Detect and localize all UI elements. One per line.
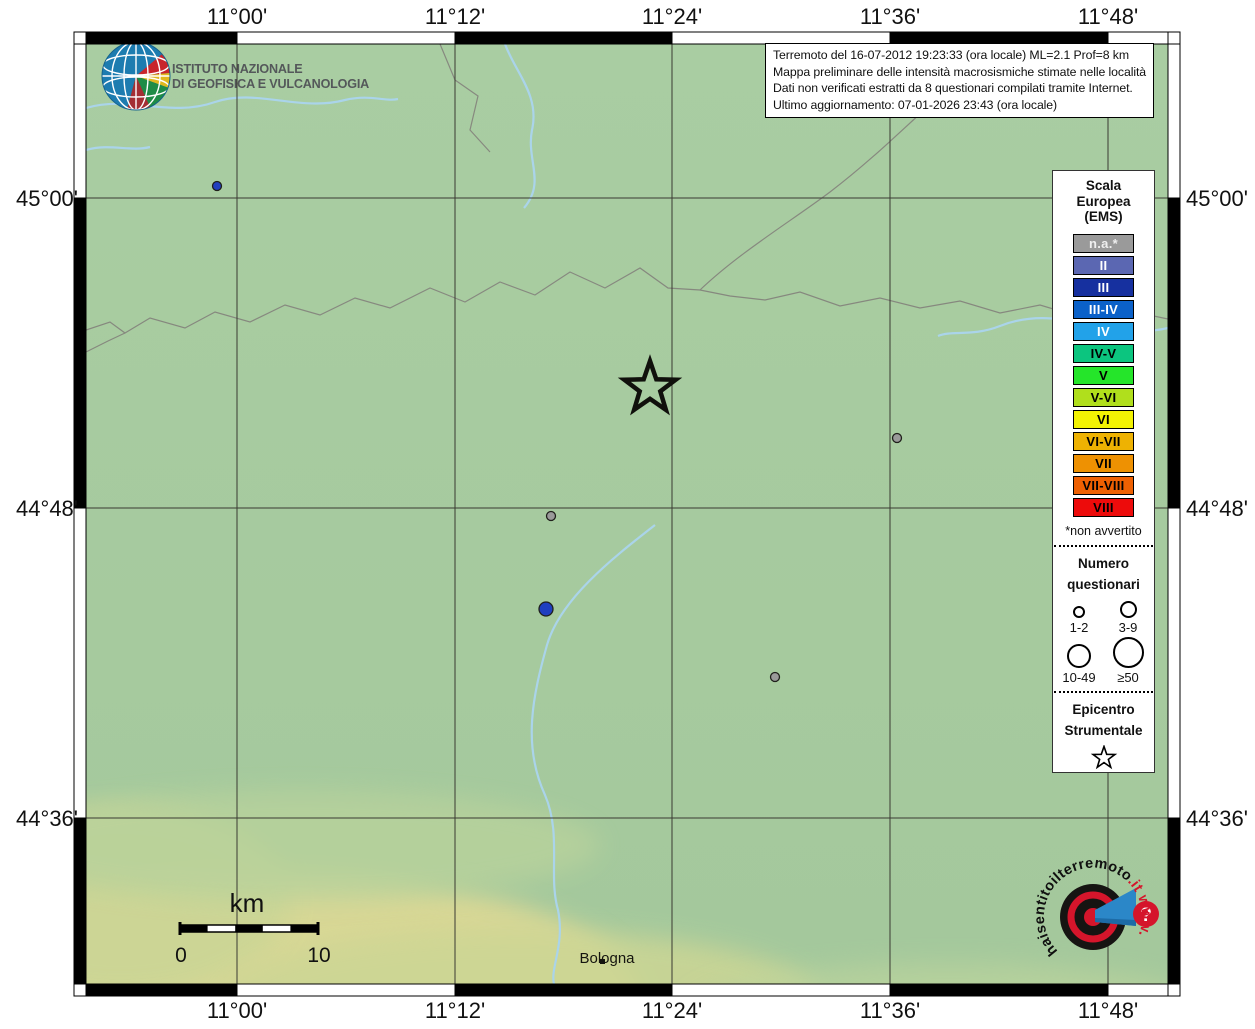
questionnaire-point (213, 182, 222, 191)
ems-swatch-vi-vii: VI-VII (1073, 432, 1134, 451)
size-label: 3-9 (1119, 620, 1138, 635)
legend-panel: Scala Europea (EMS) n.a.*IIIIIIII-IVIVIV… (1052, 170, 1155, 773)
lon-tick-label-top: 11°12' (425, 4, 485, 29)
legend-footnote: *non avvertito (1065, 524, 1141, 538)
epicenter-title-line: Strumentale (1064, 720, 1142, 741)
ingv-name-line1: ISTITUTO NAZIONALE (172, 62, 303, 76)
questionnaire-point (547, 512, 556, 521)
ems-swatch-v-vi: V-VI (1073, 388, 1134, 407)
questionnaire-point (539, 602, 553, 616)
earthquake-info-box: Terremoto del 16-07-2012 19:23:33 (ora l… (765, 43, 1154, 118)
size-label: 1-2 (1070, 620, 1089, 635)
size-label: ≥50 (1117, 670, 1139, 685)
lon-tick-label-bottom: 11°36' (860, 998, 920, 1023)
lon-tick-label-bottom: 11°48' (1078, 998, 1138, 1023)
macroseismic-map-page: Bologna km 0 10 (0, 0, 1255, 1024)
questionnaire-title-line: Numero (1067, 553, 1140, 574)
questionnaire-count-title: Numero questionari (1067, 553, 1140, 595)
size-circle-icon (1120, 601, 1137, 618)
questionnaire-point (893, 434, 902, 443)
ems-swatch-vii-viii: VII-VIII (1073, 476, 1134, 495)
lon-tick-label-bottom: 11°12' (425, 998, 485, 1023)
ems-swatch-n.a.*: n.a.* (1073, 234, 1134, 253)
size-key-item: ≥50 (1107, 637, 1150, 685)
city-label: Bologna (579, 950, 635, 967)
ems-swatch-ii: II (1073, 256, 1134, 275)
lat-tick-label-left: 44°36' (16, 806, 78, 831)
legend-title: Scala Europea (EMS) (1076, 178, 1130, 225)
size-key-item: 1-2 (1058, 601, 1101, 635)
ems-scale-swatches: n.a.*IIIIIIII-IVIVIV-VVV-VIVIVI-VIIVIIVI… (1073, 234, 1134, 517)
ems-swatch-viii: VIII (1073, 498, 1134, 517)
info-line-updated: Ultimo aggiornamento: 07-01-2026 23:43 (… (773, 97, 1146, 114)
lon-tick-label-bottom: 11°00' (207, 998, 267, 1023)
info-line-map: Mappa preliminare delle intensità macros… (773, 64, 1146, 81)
scale-bar-unit: km (230, 888, 265, 918)
lat-tick-label-left: 45°00' (16, 186, 78, 211)
size-key-item: 10-49 (1058, 637, 1101, 685)
ems-swatch-vii: VII (1073, 454, 1134, 473)
ems-swatch-iii: III (1073, 278, 1134, 297)
ems-swatch-vi: VI (1073, 410, 1134, 429)
epicenter-star-icon (1090, 745, 1118, 771)
epicenter-section-title: Epicentro Strumentale (1064, 699, 1142, 741)
ems-swatch-iv-v: IV-V (1073, 344, 1134, 363)
size-circle-icon (1113, 637, 1144, 668)
lat-tick-label-left: 44°48' (16, 496, 78, 521)
questionnaire-point (771, 673, 780, 682)
lon-tick-label-top: 11°36' (860, 4, 920, 29)
questionnaire-title-line: questionari (1067, 574, 1140, 595)
size-circle-icon (1067, 644, 1091, 668)
map-interior: Bologna km 0 10 (0, 42, 1210, 1024)
size-circle-icon (1073, 606, 1085, 618)
legend-title-line: Scala (1076, 178, 1130, 194)
lat-tick-label-right: 44°36' (1186, 806, 1248, 831)
lon-tick-label-top: 11°00' (207, 4, 267, 29)
questionnaire-size-key: 1-23-910-49≥50 (1058, 601, 1150, 685)
lat-tick-label-right: 45°00' (1186, 186, 1248, 211)
info-line-event: Terremoto del 16-07-2012 19:23:33 (ora l… (773, 47, 1146, 64)
ems-swatch-v: V (1073, 366, 1134, 385)
ingv-name-line2: DI GEOFISICA E VULCANOLOGIA (172, 77, 369, 91)
scale-bar-end: 10 (307, 944, 330, 967)
size-key-item: 3-9 (1107, 601, 1150, 635)
legend-divider (1054, 691, 1154, 693)
legend-divider (1054, 545, 1154, 547)
lon-tick-label-bottom: 11°24' (642, 998, 702, 1023)
epicenter-title-line: Epicentro (1064, 699, 1142, 720)
legend-title-line: (EMS) (1076, 209, 1130, 225)
lon-tick-label-top: 11°48' (1078, 4, 1138, 29)
size-label: 10-49 (1062, 670, 1095, 685)
scale-bar-start: 0 (175, 944, 187, 967)
info-line-data: Dati non verificati estratti da 8 questi… (773, 80, 1146, 97)
lat-tick-label-right: 44°48' (1186, 496, 1248, 521)
lon-tick-label-top: 11°24' (642, 4, 702, 29)
legend-title-line: Europea (1076, 194, 1130, 210)
ems-swatch-iii-iv: III-IV (1073, 300, 1134, 319)
ems-swatch-iv: IV (1073, 322, 1134, 341)
